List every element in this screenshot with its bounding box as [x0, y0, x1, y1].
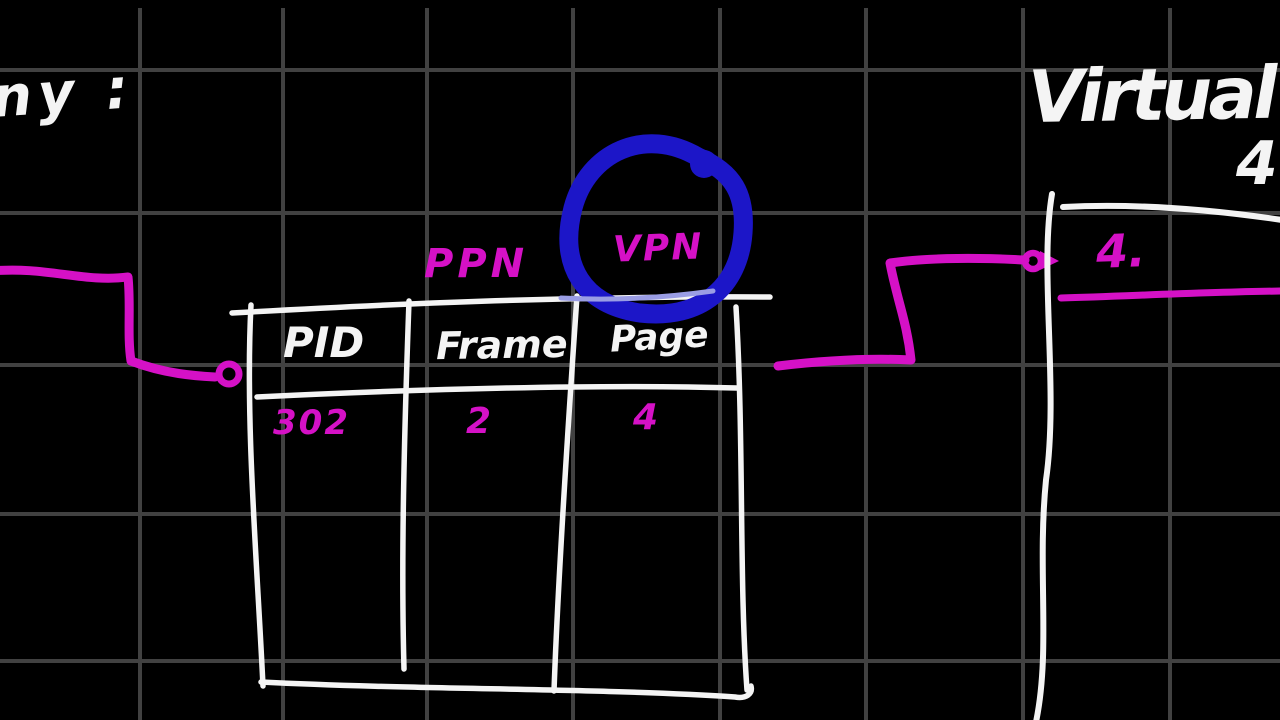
whiteboard-canvas: ny : Virtual m 4 PPN VPN PID Frame Page …: [0, 0, 1280, 720]
arrowhead-loop: [1025, 253, 1041, 269]
panel-entry-value: 4.: [1095, 227, 1146, 275]
table-header-frame: Frame: [436, 325, 568, 365]
highlight-ring-blob: [690, 150, 718, 178]
table-header-pid: PID: [283, 322, 364, 364]
table-cell-pid: 302: [273, 406, 350, 440]
table-header-page: Page: [609, 317, 709, 358]
virtual-memory-panel-outline: [1036, 194, 1280, 720]
panel-entry-divider: [1061, 291, 1280, 298]
left-connector-end-loop: [219, 364, 239, 384]
vpn-label: VPN: [612, 229, 704, 268]
table-left-line: [249, 305, 263, 686]
ppn-label: PPN: [424, 244, 528, 284]
top-left-text-fragment: ny :: [0, 61, 136, 127]
table-cell-frame: 2: [466, 404, 491, 440]
right-connector-path: [778, 258, 1025, 366]
right-connector-arrow: [778, 251, 1059, 366]
virtual-memory-number: 4: [1236, 134, 1278, 194]
virtual-memory-title: Virtual m: [1027, 55, 1280, 133]
left-connector-path: [0, 270, 215, 377]
panel-left-line: [1036, 194, 1052, 720]
table-column-divider-1: [403, 301, 409, 669]
table-header-underline: [257, 387, 737, 397]
table-bottom-line: [261, 682, 751, 697]
table-cell-page: 4: [633, 400, 658, 436]
